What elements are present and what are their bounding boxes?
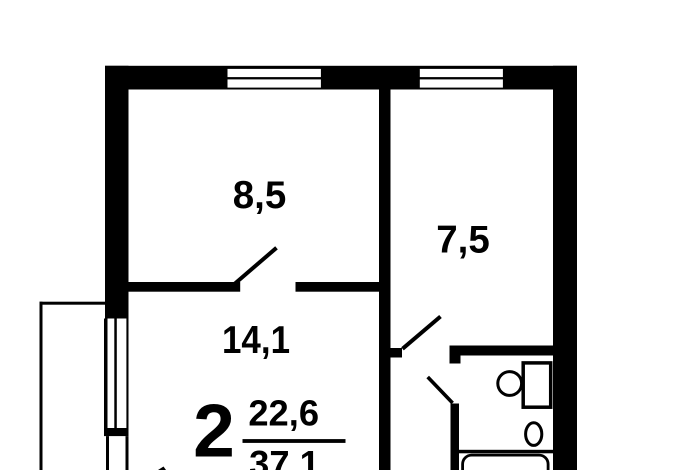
svg-text:8,5: 8,5 [233, 174, 287, 217]
svg-text:2: 2 [193, 389, 235, 470]
svg-text:37,1: 37,1 [249, 443, 320, 470]
svg-text:22,6: 22,6 [248, 392, 319, 433]
svg-text:7,5: 7,5 [436, 218, 490, 261]
svg-text:14,1: 14,1 [222, 319, 290, 362]
